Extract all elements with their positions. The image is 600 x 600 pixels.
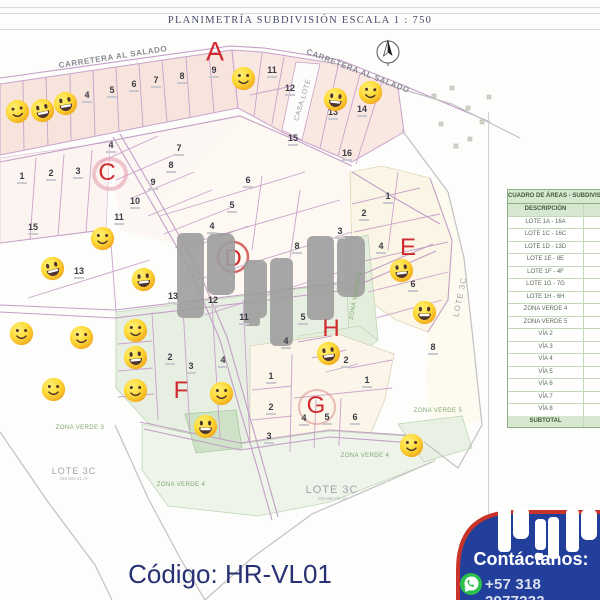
areas-table-row: ZONA VERDE 4	[508, 304, 600, 317]
compass-icon	[377, 40, 399, 66]
areas-table: CUADRO DE ÁREAS - SUBDIVISIÓN - LOTE DES…	[507, 189, 600, 428]
contact-phone[interactable]: +57 318 2977233	[485, 576, 600, 600]
areas-table-row: LOTE 1D - 13D	[508, 242, 600, 255]
lot-fills	[0, 50, 481, 516]
areas-table-row: VÍA 5	[508, 367, 600, 380]
contact-cta: Contáctanos:	[462, 549, 600, 570]
areas-table-row: ZONA VERDE 5	[508, 317, 600, 330]
flyer-canvas: PLANIMETRÍA SUBDIVISIÓN ESCALA 1 : 750	[0, 0, 600, 600]
areas-table-row: VÍA 2	[508, 329, 600, 342]
areas-table-row: LOTE 1F - 4F	[508, 267, 600, 280]
areas-table-title: CUADRO DE ÁREAS - SUBDIVISIÓN - LOTE	[508, 190, 600, 204]
map-frame-divider	[488, 112, 489, 548]
areas-table-row: VÍA 8	[508, 404, 600, 416]
areas-table-row: VÍA 6	[508, 379, 600, 392]
tree-icons	[432, 86, 491, 148]
areas-table-row: LOTE 1H - 6H	[508, 292, 600, 305]
listing-code: Código: HR-VL01	[0, 559, 460, 590]
areas-table-header: DESCRIPCIÓN	[508, 204, 600, 217]
areas-table-row: LOTE 1G - 7G	[508, 279, 600, 292]
areas-table-row: VÍA 7	[508, 392, 600, 405]
whatsapp-icon[interactable]	[459, 572, 483, 596]
areas-table-subtotal: SUBTOTAL	[508, 416, 600, 428]
areas-table-row: LOTE 1A - 16A	[508, 217, 600, 230]
areas-table-row: LOTE 1E - 8E	[508, 254, 600, 267]
areas-table-row: LOTE 1C - 16C	[508, 229, 600, 242]
areas-table-row: VÍA 4	[508, 354, 600, 367]
areas-table-row: VÍA 3	[508, 342, 600, 355]
